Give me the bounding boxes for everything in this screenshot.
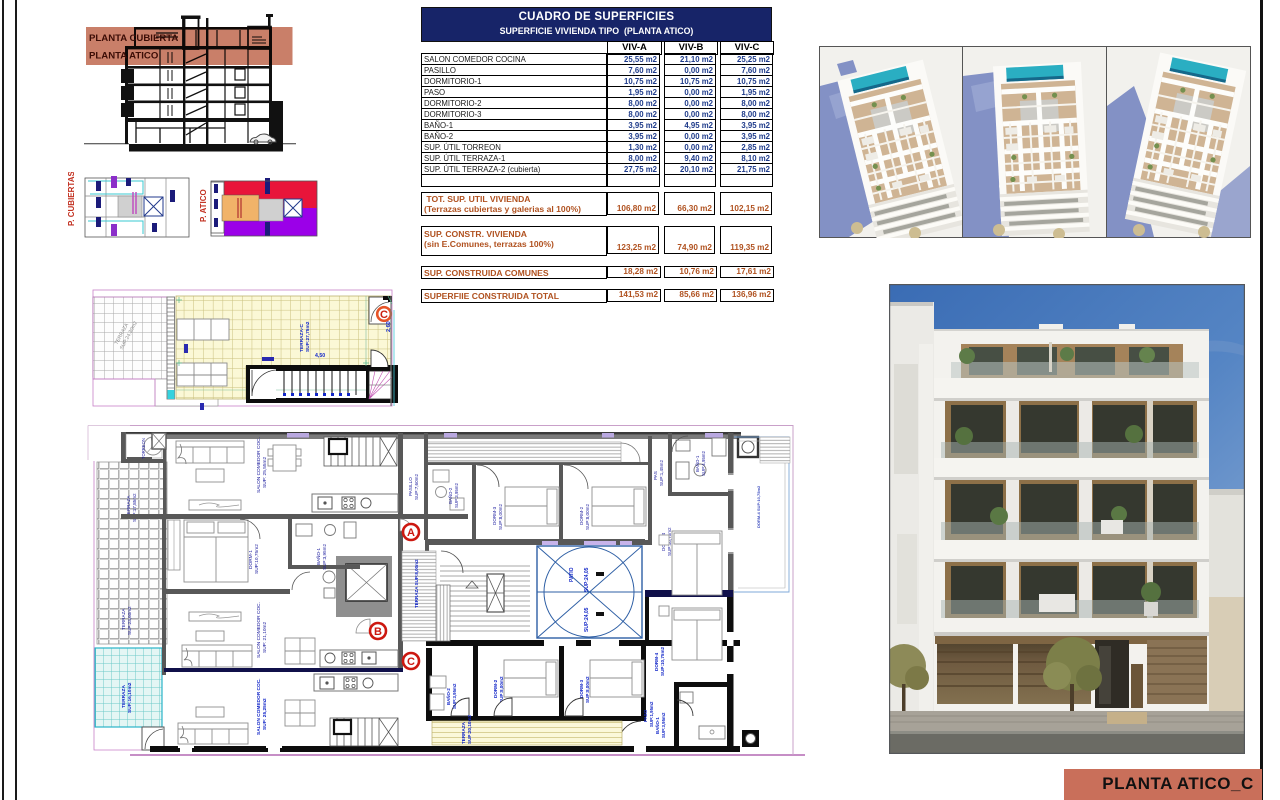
svg-text:SUP:8,00m2: SUP:8,00m2 bbox=[498, 504, 503, 530]
svg-text:PATIO: PATIO bbox=[569, 567, 575, 582]
svg-text:B: B bbox=[374, 626, 382, 638]
svg-text:PASO: PASO bbox=[643, 709, 648, 722]
svg-text:BAÑO-1: BAÑO-1 bbox=[315, 547, 321, 565]
svg-text:C: C bbox=[380, 309, 388, 321]
svg-text:BAÑO-2: BAÑO-2 bbox=[448, 487, 453, 504]
svg-text:SUP:24,05: SUP:24,05 bbox=[584, 607, 590, 632]
svg-text:2,60: 2,60 bbox=[386, 321, 392, 332]
svg-text:PAS: PAS bbox=[653, 471, 658, 480]
svg-text:SALON COMEDOR COC.: SALON COMEDOR COC. bbox=[256, 679, 262, 736]
svg-text:DORM-4 SUP:10,75m2: DORM-4 SUP:10,75m2 bbox=[756, 485, 761, 528]
svg-text:PLANTA ATICO: PLANTA ATICO bbox=[89, 51, 159, 62]
svg-text:TERRAZA: TERRAZA bbox=[461, 721, 466, 744]
svg-text:P. ATICO: P. ATICO bbox=[199, 189, 208, 222]
svg-text:SUP:20,10m2: SUP:20,10m2 bbox=[467, 714, 472, 744]
svg-text:A: A bbox=[407, 527, 415, 539]
svg-text:C: C bbox=[407, 656, 415, 668]
svg-text:SUP: 25,55m2: SUP: 25,55m2 bbox=[262, 456, 268, 488]
svg-text:SUP:16,10m2: SUP:16,10m2 bbox=[127, 682, 133, 713]
svg-text:SALON COMEDOR COC.: SALON COMEDOR COC. bbox=[256, 602, 262, 658]
svg-text:SUP:8,00m2: SUP:8,00m2 bbox=[585, 676, 590, 703]
svg-text:SUP:3,95m2: SUP:3,95m2 bbox=[661, 712, 666, 738]
svg-text:SUP:3,95m2: SUP:3,95m2 bbox=[452, 683, 457, 709]
svg-text:SALON COMEDOR COC.: SALON COMEDOR COC. bbox=[256, 437, 262, 493]
svg-text:SUP:4,95m2: SUP:4,95m2 bbox=[701, 451, 706, 476]
svg-text:DORM-3: DORM-3 bbox=[492, 506, 497, 525]
svg-text:TERRAZA: TERRAZA bbox=[121, 685, 127, 708]
svg-text:SUP:10,75m2: SUP:10,75m2 bbox=[660, 646, 665, 676]
svg-text:TERRAZA SUP:8,00m2: TERRAZA SUP:8,00m2 bbox=[414, 559, 419, 608]
svg-text:DORM-3: DORM-3 bbox=[579, 679, 584, 698]
svg-text:SUP:3,95m2: SUP:3,95m2 bbox=[454, 483, 459, 508]
svg-text:4,50: 4,50 bbox=[315, 353, 325, 359]
svg-text:PLANTA CUBIERTA: PLANTA CUBIERTA bbox=[89, 33, 178, 44]
svg-text:BAÑO-2: BAÑO-2 bbox=[446, 688, 451, 705]
svg-text:TORREON: TORREON bbox=[141, 438, 146, 459]
svg-text:SUP: 25,25m2: SUP: 25,25m2 bbox=[262, 698, 268, 730]
svg-text:BAÑO-1: BAÑO-1 bbox=[695, 455, 700, 472]
svg-text:P. CUBIERTAS: P. CUBIERTAS bbox=[67, 172, 76, 226]
svg-text:BAÑO-1: BAÑO-1 bbox=[655, 717, 660, 734]
svg-text:SUP:1,45m2: SUP:1,45m2 bbox=[659, 460, 664, 486]
svg-text:PASILLO: PASILLO bbox=[408, 477, 413, 496]
svg-text:SUP:1,95m2: SUP:1,95m2 bbox=[649, 701, 654, 727]
svg-text:TERRAZA: TERRAZA bbox=[126, 495, 131, 517]
svg-text:TERRAZA-C: TERRAZA-C bbox=[299, 323, 305, 352]
svg-text:SUP:8,00m2: SUP:8,00m2 bbox=[499, 676, 504, 703]
svg-text:DORM-2: DORM-2 bbox=[579, 506, 584, 525]
svg-text:DORM-1: DORM-1 bbox=[248, 550, 254, 569]
svg-text:SUP:27,75m2: SUP:27,75m2 bbox=[305, 321, 311, 352]
svg-text:TERRAZA: TERRAZA bbox=[121, 608, 126, 630]
svg-text:SUP:10,75m2: SUP:10,75m2 bbox=[254, 544, 260, 574]
svg-text:DORM-2: DORM-2 bbox=[493, 679, 498, 698]
svg-text:SUP:24,05: SUP:24,05 bbox=[584, 567, 590, 592]
svg-text:SUP: 21,10m2: SUP: 21,10m2 bbox=[262, 621, 268, 653]
svg-text:SUP:7,60m2: SUP:7,60m2 bbox=[414, 474, 419, 500]
svg-text:SUP:3,95m2: SUP:3,95m2 bbox=[322, 544, 327, 570]
svg-text:SUP:23,60m2: SUP:23,60m2 bbox=[127, 606, 132, 635]
svg-text:SUP:8,00m2: SUP:8,00m2 bbox=[585, 504, 590, 530]
svg-text:DORM-4: DORM-4 bbox=[654, 652, 659, 671]
